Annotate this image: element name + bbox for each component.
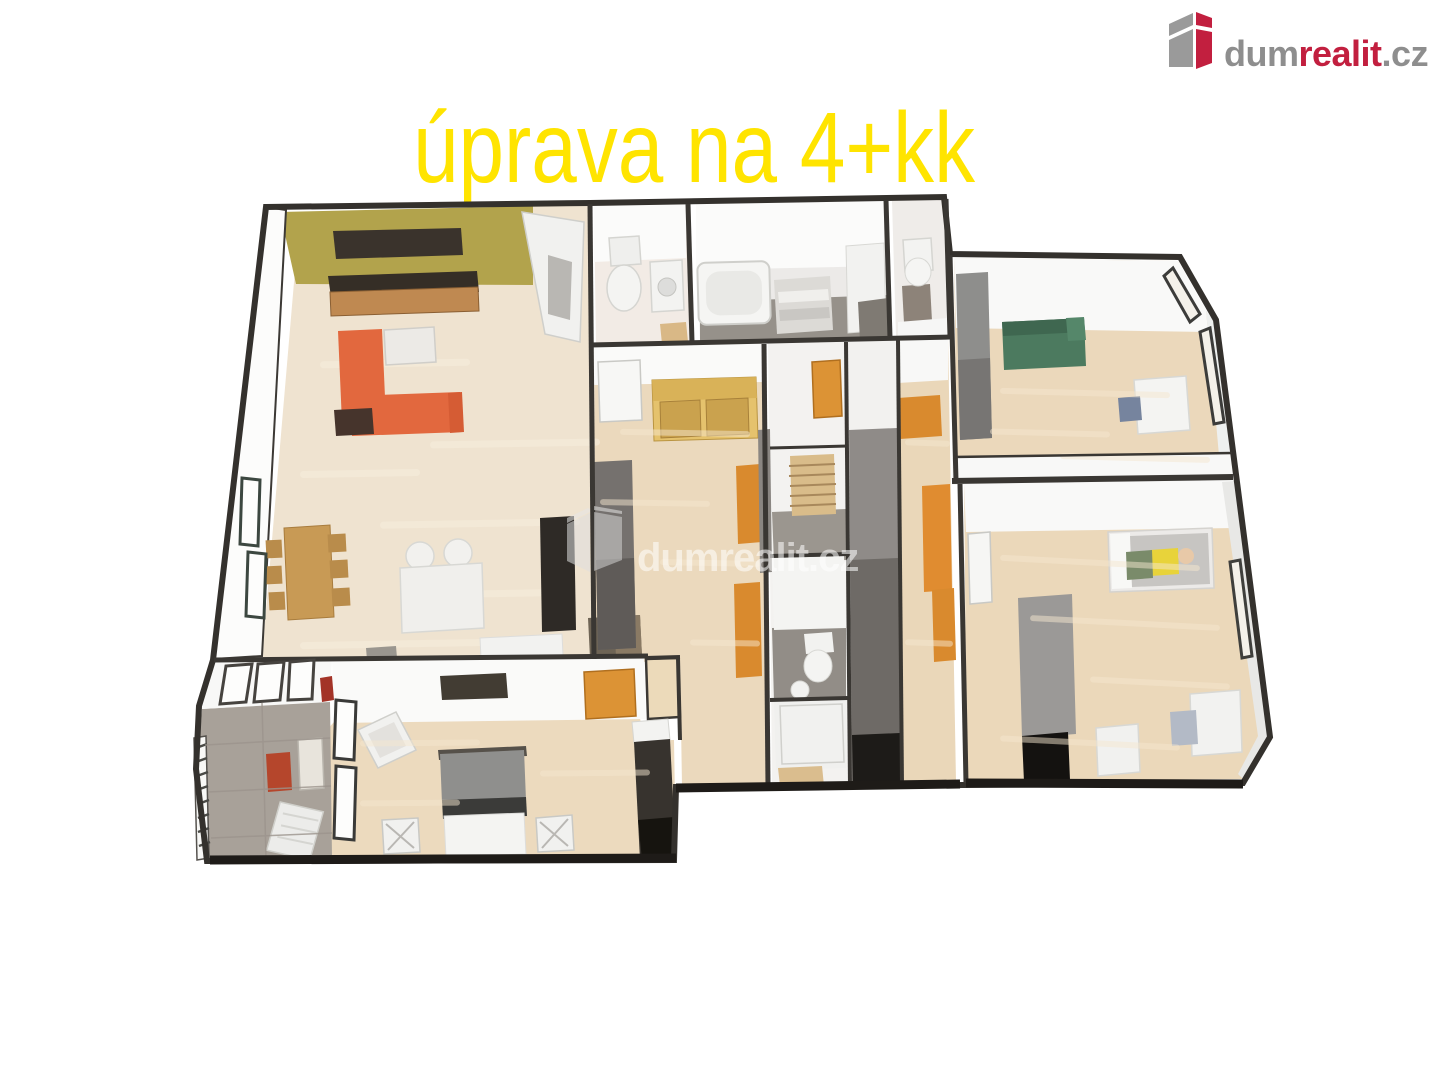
svg-text:úprava na 4+kk: úprava na 4+kk	[413, 92, 976, 204]
svg-text:dumrealit.cz: dumrealit.cz	[1224, 33, 1428, 74]
svg-text:dumrealit.cz: dumrealit.cz	[637, 536, 858, 580]
